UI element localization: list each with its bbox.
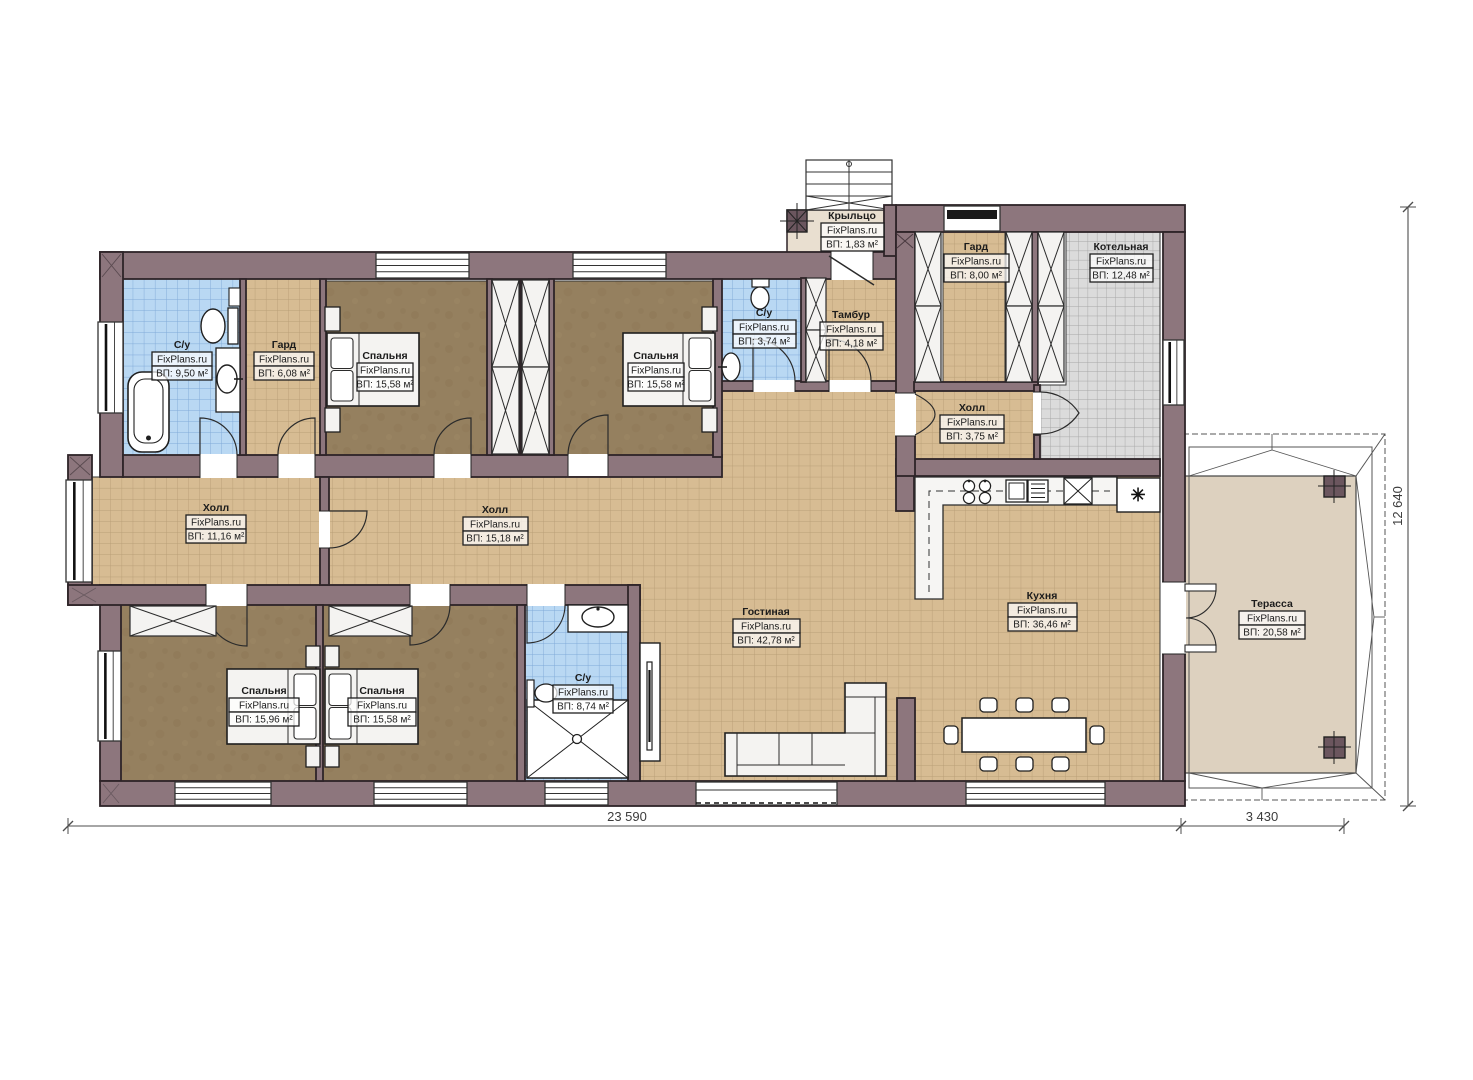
svg-text:Крыльцо: Крыльцо [828, 210, 876, 222]
svg-text:FixPlans.ru: FixPlans.ru [951, 257, 1001, 268]
svg-text:FixPlans.ru: FixPlans.ru [827, 226, 877, 237]
svg-text:ВП: 15,58 м²: ВП: 15,58 м² [627, 380, 685, 391]
svg-text:FixPlans.ru: FixPlans.ru [826, 325, 876, 336]
svg-text:FixPlans.ru: FixPlans.ru [741, 622, 791, 633]
svg-text:FixPlans.ru: FixPlans.ru [239, 701, 289, 712]
svg-text:С/у: С/у [174, 339, 191, 351]
svg-text:ВП: 42,78 м²: ВП: 42,78 м² [737, 636, 795, 647]
svg-text:Гостиная: Гостиная [742, 606, 789, 618]
svg-text:FixPlans.ru: FixPlans.ru [1247, 614, 1297, 625]
svg-text:Холл: Холл [959, 402, 985, 414]
svg-text:ВП: 36,46 м²: ВП: 36,46 м² [1013, 620, 1071, 631]
svg-text:ВП: 11,16 м²: ВП: 11,16 м² [188, 532, 245, 543]
svg-text:Гард: Гард [272, 339, 297, 351]
svg-text:FixPlans.ru: FixPlans.ru [470, 520, 520, 531]
svg-text:ВП: 6,08 м²: ВП: 6,08 м² [258, 369, 311, 380]
svg-text:FixPlans.ru: FixPlans.ru [357, 701, 407, 712]
svg-text:FixPlans.ru: FixPlans.ru [631, 366, 681, 377]
svg-text:Спальня: Спальня [359, 685, 404, 697]
svg-text:ВП: 15,58 м²: ВП: 15,58 м² [356, 380, 414, 391]
svg-text:Котельная: Котельная [1094, 241, 1149, 253]
svg-text:FixPlans.ru: FixPlans.ru [259, 355, 309, 366]
svg-text:FixPlans.ru: FixPlans.ru [360, 366, 410, 377]
svg-text:FixPlans.ru: FixPlans.ru [739, 323, 789, 334]
svg-text:Гард: Гард [964, 241, 989, 253]
svg-text:✳: ✳ [1130, 485, 1145, 505]
svg-text:ВП: 9,50 м²: ВП: 9,50 м² [156, 369, 209, 380]
svg-text:Холл: Холл [203, 502, 229, 514]
svg-text:Холл: Холл [482, 504, 508, 516]
svg-text:ВП: 8,00 м²: ВП: 8,00 м² [950, 271, 1003, 282]
svg-text:Терасса: Терасса [1251, 598, 1293, 610]
svg-text:FixPlans.ru: FixPlans.ru [558, 688, 608, 699]
svg-text:Кухня: Кухня [1027, 590, 1058, 602]
svg-text:ВП: 20,58 м²: ВП: 20,58 м² [1243, 628, 1301, 639]
svg-text:С/у: С/у [575, 672, 592, 684]
svg-text:FixPlans.ru: FixPlans.ru [157, 355, 207, 366]
svg-text:FixPlans.ru: FixPlans.ru [1017, 606, 1067, 617]
svg-text:Спальня: Спальня [362, 350, 407, 362]
svg-text:ВП: 8,74 м²: ВП: 8,74 м² [557, 702, 610, 713]
svg-text:ВП: 4,18 м²: ВП: 4,18 м² [825, 339, 878, 350]
svg-text:FixPlans.ru: FixPlans.ru [947, 418, 997, 429]
svg-text:ВП: 3,74 м²: ВП: 3,74 м² [738, 337, 791, 348]
svg-text:ВП: 15,18 м²: ВП: 15,18 м² [466, 534, 524, 545]
svg-text:ВП: 15,96 м²: ВП: 15,96 м² [235, 715, 293, 726]
svg-text:ВП: 1,83 м²: ВП: 1,83 м² [826, 240, 879, 251]
svg-text:ВП: 3,75 м²: ВП: 3,75 м² [946, 432, 999, 443]
svg-text:12 640: 12 640 [1390, 486, 1405, 526]
svg-text:ВП: 12,48 м²: ВП: 12,48 м² [1092, 271, 1150, 282]
svg-text:Спальня: Спальня [241, 685, 286, 697]
svg-text:FixPlans.ru: FixPlans.ru [191, 518, 241, 529]
svg-text:Спальня: Спальня [633, 350, 678, 362]
svg-text:FixPlans.ru: FixPlans.ru [1096, 257, 1146, 268]
svg-text:С/у: С/у [756, 307, 773, 319]
svg-text:ВП: 15,58 м²: ВП: 15,58 м² [353, 715, 411, 726]
svg-text:Тамбур: Тамбур [832, 309, 870, 321]
svg-text:23 590: 23 590 [607, 809, 647, 824]
svg-text:3 430: 3 430 [1246, 809, 1279, 824]
